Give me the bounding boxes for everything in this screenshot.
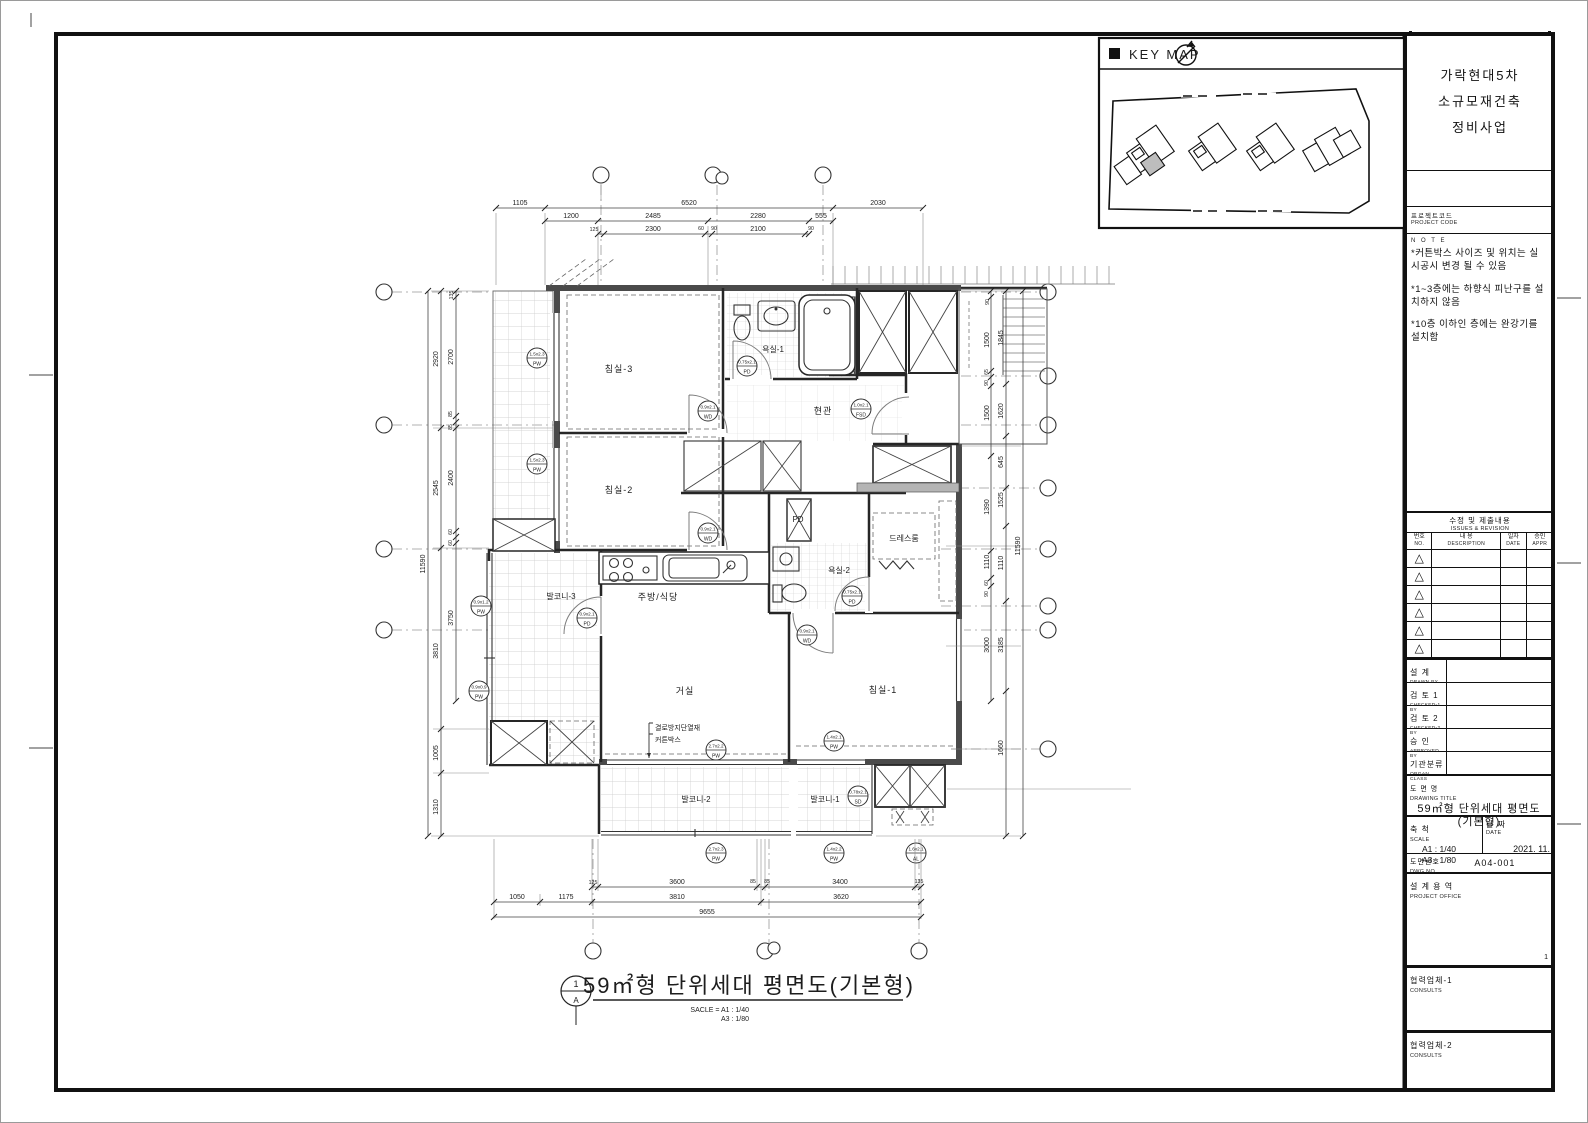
dim-text: 90	[808, 226, 814, 232]
svg-text:PD: PD	[584, 622, 591, 628]
caption-scale-a3: A3 : 1/80	[721, 1016, 749, 1023]
revision-row: △	[1407, 640, 1553, 658]
scale-date-row: 축 척 SCALE A1 : 1/40 A3 : 1/80 날 짜 DATE 2…	[1407, 817, 1553, 854]
svg-text:2.7x2.2: 2.7x2.2	[708, 744, 724, 749]
rev-col-no-ko: 번호	[1414, 534, 1425, 540]
revision-triangle-icon: △	[1415, 641, 1424, 655]
opening-tag: 0.75x2.1PD	[737, 356, 757, 376]
keymap-title: KEY MAP	[1129, 47, 1201, 62]
key-map: KEY MAP	[1099, 38, 1404, 228]
caption-scale-a1: SACLE = A1 : 1/40	[690, 1007, 749, 1014]
dim-text: 3600	[669, 879, 685, 886]
dim-text: 2920	[433, 351, 440, 367]
dim-text: 3810	[669, 894, 685, 901]
rev-col-appr-ko: 승인	[1534, 534, 1545, 540]
dim-text: 2030	[870, 200, 886, 207]
dim-text: 3750	[448, 610, 455, 626]
svg-text:1.4x2.2: 1.4x2.2	[826, 847, 842, 852]
spare-box	[1407, 171, 1553, 207]
scale-label-en: SCALE	[1410, 837, 1479, 843]
drawing-title-line1: 59㎡형 단위세대 평면도	[1417, 803, 1540, 815]
room-label-bath1: 욕실-1	[762, 344, 784, 354]
signoff-row-check2: 검 토 2CHECKED-2 BY	[1407, 706, 1553, 729]
revision-triangle-icon: △	[1415, 551, 1424, 565]
svg-text:WD: WD	[803, 639, 812, 645]
opening-tag: 0.9x0.9PW	[469, 681, 489, 701]
dwg-no-row: 도면번호DWG NO. A04-001	[1407, 854, 1553, 874]
opening-tag: 0.9x1.2PW	[471, 596, 491, 616]
opening-tag: 0.75x2.1PD	[842, 586, 862, 606]
dim-text: 125	[590, 227, 599, 233]
svg-text:0.75x2.1: 0.75x2.1	[843, 590, 861, 595]
dim-text: 85	[764, 879, 770, 885]
consultant-2-box: 협력업체-2 CONSULTS	[1407, 1031, 1553, 1098]
room-label-bedroom3: 침실-3	[605, 364, 634, 374]
opening-tag: 0.9x2.1PD	[577, 608, 597, 628]
dim-text: 3000	[984, 637, 991, 653]
curtainbox-note: 커튼박스	[655, 735, 681, 744]
opening-tag: 1.5x2.3PW	[527, 454, 547, 474]
opening-tag: 1.0x2.1FSD	[851, 399, 871, 419]
signoff-ko: 승 인	[1410, 737, 1430, 746]
project-code-label-ko: 프로젝트코드	[1411, 210, 1549, 220]
svg-text:PW: PW	[830, 857, 838, 863]
rev-col-no-en: NO.	[1414, 541, 1424, 547]
note-item-1: *커튼박스 사이즈 및 위치는 실 시공시 변경 될 수 있음	[1411, 248, 1549, 274]
office-label-ko: 설 계 용 역	[1410, 882, 1453, 891]
project-code-label-en: PROJECT CODE	[1411, 220, 1549, 226]
exterior-tile-strip	[493, 291, 553, 547]
office-page-number: 1	[1544, 954, 1548, 961]
revision-title-ko: 수정 및 제출내용	[1407, 515, 1553, 526]
opening-tag: 0.9x2.1WD	[698, 523, 718, 543]
drawing-sheet: KEY MAP	[0, 0, 1588, 1123]
svg-text:PW: PW	[712, 857, 720, 863]
revision-title: 수정 및 제출내용 ISSUES & REVISION	[1407, 511, 1553, 533]
opening-tag: 2.7x2.3PW	[706, 843, 726, 863]
signoff-ko: 설 계	[1410, 668, 1430, 677]
svg-text:0.9x1.2: 0.9x1.2	[473, 600, 489, 605]
svg-text:1.6x2.1: 1.6x2.1	[908, 847, 924, 852]
opening-tag: 1.6x2.1AL	[906, 843, 926, 863]
dim-text: 1525	[998, 492, 1005, 508]
dim-text: 90	[711, 226, 717, 232]
dim-text: 3620	[833, 894, 849, 901]
dim-text: 2545	[433, 480, 440, 496]
drawing-title-box: 도 면 명 DRAWING TITLE 59㎡형 단위세대 평면도 (기본형)	[1407, 774, 1553, 817]
dim-text: 60	[448, 540, 454, 546]
revision-triangle-icon: △	[1415, 569, 1424, 583]
dim-text: 2100	[750, 226, 766, 233]
revision-row: △	[1407, 586, 1553, 604]
date-label-en: DATE	[1486, 830, 1550, 836]
insulation-note: 결로방지단열재	[655, 723, 700, 732]
caption-sheet-ref: A	[573, 996, 579, 1005]
signoff-ko: 검 토 1	[1410, 691, 1439, 700]
opening-tag: 1.4x2.1PW	[824, 731, 844, 751]
revision-row: △	[1407, 550, 1553, 568]
pd2-shaft-label: PD	[792, 515, 803, 524]
dim-text: 6520	[681, 200, 697, 207]
dim-text: 645	[998, 456, 1005, 468]
room-label-balcony3: 발코니-3	[546, 591, 576, 601]
room-label-balcony1: 발코니-1	[810, 794, 840, 804]
consult2-label-ko: 협력업체-2	[1410, 1041, 1453, 1050]
signoff-ko: 기관분류	[1410, 760, 1443, 769]
svg-text:PW: PW	[477, 610, 485, 616]
room-label-entrance: 현관	[814, 406, 833, 416]
dim-text: 1050	[509, 894, 525, 901]
dim-text: 3400	[832, 879, 848, 886]
dim-text: 1110	[998, 556, 1005, 571]
revision-triangle-icon: △	[1415, 605, 1424, 619]
svg-text:0.9x2.1: 0.9x2.1	[700, 527, 716, 532]
date-value: 2021. 11.	[1486, 844, 1550, 854]
svg-text:1.5x2.3: 1.5x2.3	[529, 458, 545, 463]
rev-col-desc-en: DESCRIPTION	[1448, 541, 1485, 547]
dim-text: 9655	[699, 909, 715, 916]
revision-header: 번호NO. 내 용DESCRIPTION 일자DATE 승인APPR	[1407, 533, 1553, 550]
dwg-no-value: A04-001	[1440, 858, 1550, 868]
svg-text:0.9x0.9: 0.9x0.9	[471, 685, 487, 690]
dim-text: 1500	[984, 405, 991, 421]
dim-text: 2485	[645, 213, 661, 220]
svg-text:AL: AL	[913, 857, 919, 863]
revision-triangle-icon: △	[1415, 587, 1424, 601]
consult2-label-en: CONSULTS	[1410, 1053, 1550, 1059]
svg-text:1.0x2.1: 1.0x2.1	[853, 403, 869, 408]
svg-text:0.9x2.1: 0.9x2.1	[579, 612, 595, 617]
project-code-box: 프로젝트코드 PROJECT CODE	[1407, 207, 1553, 234]
svg-text:FSD: FSD	[856, 413, 866, 419]
dim-text: 135	[915, 879, 924, 885]
svg-text:PW: PW	[533, 362, 541, 368]
dim-text: 2300	[645, 226, 661, 233]
note-item-2: *1~3층에는 하향식 피난구를 설치하지 않음	[1411, 284, 1549, 310]
scale-label-ko: 축 척	[1410, 825, 1430, 834]
dim-text: 1200	[563, 213, 579, 220]
kitchen-counter	[599, 552, 769, 584]
svg-text:PW: PW	[533, 468, 541, 474]
dim-text: 3810	[433, 643, 440, 659]
svg-text:1.4x2.1: 1.4x2.1	[826, 735, 842, 740]
project-name-line3: 정비사업	[1438, 115, 1522, 141]
svg-text:PW: PW	[475, 695, 483, 701]
opening-tag: 1.4x2.2PW	[824, 843, 844, 863]
dim-text: 1105	[512, 200, 527, 207]
svg-text:0.78x2.1: 0.78x2.1	[849, 790, 867, 795]
date-label-ko: 날 짜	[1486, 820, 1506, 829]
svg-text:WD: WD	[704, 537, 713, 543]
scale-cell: 축 척 SCALE A1 : 1/40 A3 : 1/80	[1407, 817, 1483, 853]
dim-text: 135	[449, 291, 455, 300]
signoff-row-check1: 검 토 1CHECKED-1 BY	[1407, 683, 1553, 706]
dim-text: 85	[750, 879, 756, 885]
note-label: N O T E	[1411, 237, 1549, 245]
caption-number: 1	[573, 979, 578, 989]
dim-text: 60	[984, 580, 990, 586]
dim-text: 60	[698, 226, 704, 232]
dim-text: 1110	[984, 555, 991, 570]
room-label-dress: 드레스룸	[889, 534, 918, 543]
dim-text: 2400	[448, 470, 455, 486]
dim-text: 555	[815, 213, 827, 220]
title-block: 가락현대5차 소규모재건축 정비사업 프로젝트코드 PROJECT CODE N…	[1404, 34, 1553, 1090]
office-label-en: PROJECT OFFICE	[1410, 894, 1550, 900]
signoff-row-drawn: 설 계DRAWN BY	[1407, 660, 1553, 683]
dim-text: 1500	[984, 332, 991, 348]
svg-text:PW: PW	[712, 754, 720, 760]
project-name-line1: 가락현대5차	[1438, 63, 1522, 89]
dim-text: 1175	[558, 894, 573, 901]
opening-tag: 0.78x2.1SD	[848, 786, 868, 806]
dim-text: 65	[984, 369, 990, 375]
dim-text: 90	[985, 299, 991, 305]
revision-row: △	[1407, 622, 1553, 640]
rev-col-date-en: DATE	[1506, 541, 1520, 547]
project-name-box: 가락현대5차 소규모재건축 정비사업	[1407, 34, 1553, 171]
dim-text: 90	[984, 591, 990, 597]
dim-text: 85	[448, 411, 454, 417]
dim-text: 3185	[998, 637, 1005, 653]
svg-text:0.9x2.1: 0.9x2.1	[799, 629, 815, 634]
dim-text: 11590	[420, 554, 427, 573]
revision-row: △	[1407, 604, 1553, 622]
svg-text:SD: SD	[855, 800, 862, 806]
room-label-bedroom2: 침실-2	[605, 485, 634, 495]
date-cell: 날 짜 DATE 2021. 11.	[1483, 817, 1553, 853]
dim-text: 1620	[998, 403, 1005, 419]
signoff-table: 설 계DRAWN BY 검 토 1CHECKED-1 BY 검 토 2CHECK…	[1407, 658, 1553, 775]
consultant-1-box: 협력업체-1 CONSULTS	[1407, 966, 1553, 1031]
project-name-line2: 소규모재건축	[1438, 89, 1522, 115]
dim-text: 11590	[1015, 536, 1022, 555]
opening-tag: 0.9x2.1WD	[797, 625, 817, 645]
rev-col-desc-ko: 내 용	[1460, 534, 1473, 540]
keymap-bullet-icon	[1109, 48, 1120, 59]
opening-tag: 2.7x2.2PW	[706, 740, 726, 760]
dim-text: 85	[448, 424, 454, 430]
project-office-box: 설 계 용 역 PROJECT OFFICE 1	[1407, 874, 1553, 966]
signoff-row-organ: 기관분류ORGAN CLASS	[1407, 752, 1553, 775]
opening-tag: 1.5x2.3PW	[527, 348, 547, 368]
svg-text:PW: PW	[830, 745, 838, 751]
svg-text:PD: PD	[849, 600, 856, 606]
note-box: N O T E *커튼박스 사이즈 및 위치는 실 시공시 변경 될 수 있음 …	[1407, 234, 1553, 511]
svg-text:PD: PD	[744, 370, 751, 376]
dim-text: 2280	[750, 213, 766, 220]
svg-text:0.9x2.1: 0.9x2.1	[700, 405, 716, 410]
revision-title-en: ISSUES & REVISION	[1407, 526, 1553, 532]
rev-col-date-ko: 일자	[1508, 534, 1519, 540]
dim-text: 2700	[448, 349, 455, 365]
dim-text: 1390	[984, 499, 991, 515]
dim-text: 60	[448, 529, 454, 535]
rev-col-appr-en: APPR	[1532, 541, 1547, 547]
dim-text: 1310	[433, 799, 440, 815]
consult1-label-ko: 협력업체-1	[1410, 976, 1453, 985]
dim-text: 1660	[998, 740, 1005, 756]
room-label-balcony2: 발코니-2	[681, 794, 711, 804]
signoff-row-approved: 승 인APPROVED BY	[1407, 729, 1553, 752]
drawing-title-label-en: DRAWING TITLE	[1410, 796, 1548, 802]
note-item-3: *10층 이하인 층에는 완강기를 설치함	[1411, 319, 1549, 345]
dim-text: 90	[984, 380, 990, 386]
dim-text: 1005	[433, 745, 440, 761]
opening-tag: 0.9x2.1WD	[698, 401, 718, 421]
caption-title: 59㎡형 단위세대 평면도(기본형)	[583, 973, 915, 998]
dim-text: 1845	[998, 330, 1005, 346]
revision-triangle-icon: △	[1415, 623, 1424, 637]
dwg-no-label-ko: 도면번호	[1410, 859, 1440, 866]
room-label-bath2: 욕실-2	[828, 565, 850, 575]
signoff-ko: 검 토 2	[1410, 714, 1439, 723]
svg-text:0.75x2.1: 0.75x2.1	[738, 360, 756, 365]
room-label-living: 거실	[676, 686, 695, 696]
room-label-bedroom1: 침실-1	[869, 685, 898, 695]
dim-text: 125	[589, 880, 598, 886]
drawing-title-label-ko: 도 면 명	[1410, 786, 1438, 793]
sheet-canvas: KEY MAP	[1, 1, 1588, 1123]
svg-text:2.7x2.3: 2.7x2.3	[708, 847, 724, 852]
svg-text:1.5x2.3: 1.5x2.3	[529, 352, 545, 357]
consult1-label-en: CONSULTS	[1410, 988, 1550, 994]
revision-row: △	[1407, 568, 1553, 586]
svg-text:WD: WD	[704, 415, 713, 421]
room-label-kitchen: 주방/식당	[638, 592, 679, 602]
